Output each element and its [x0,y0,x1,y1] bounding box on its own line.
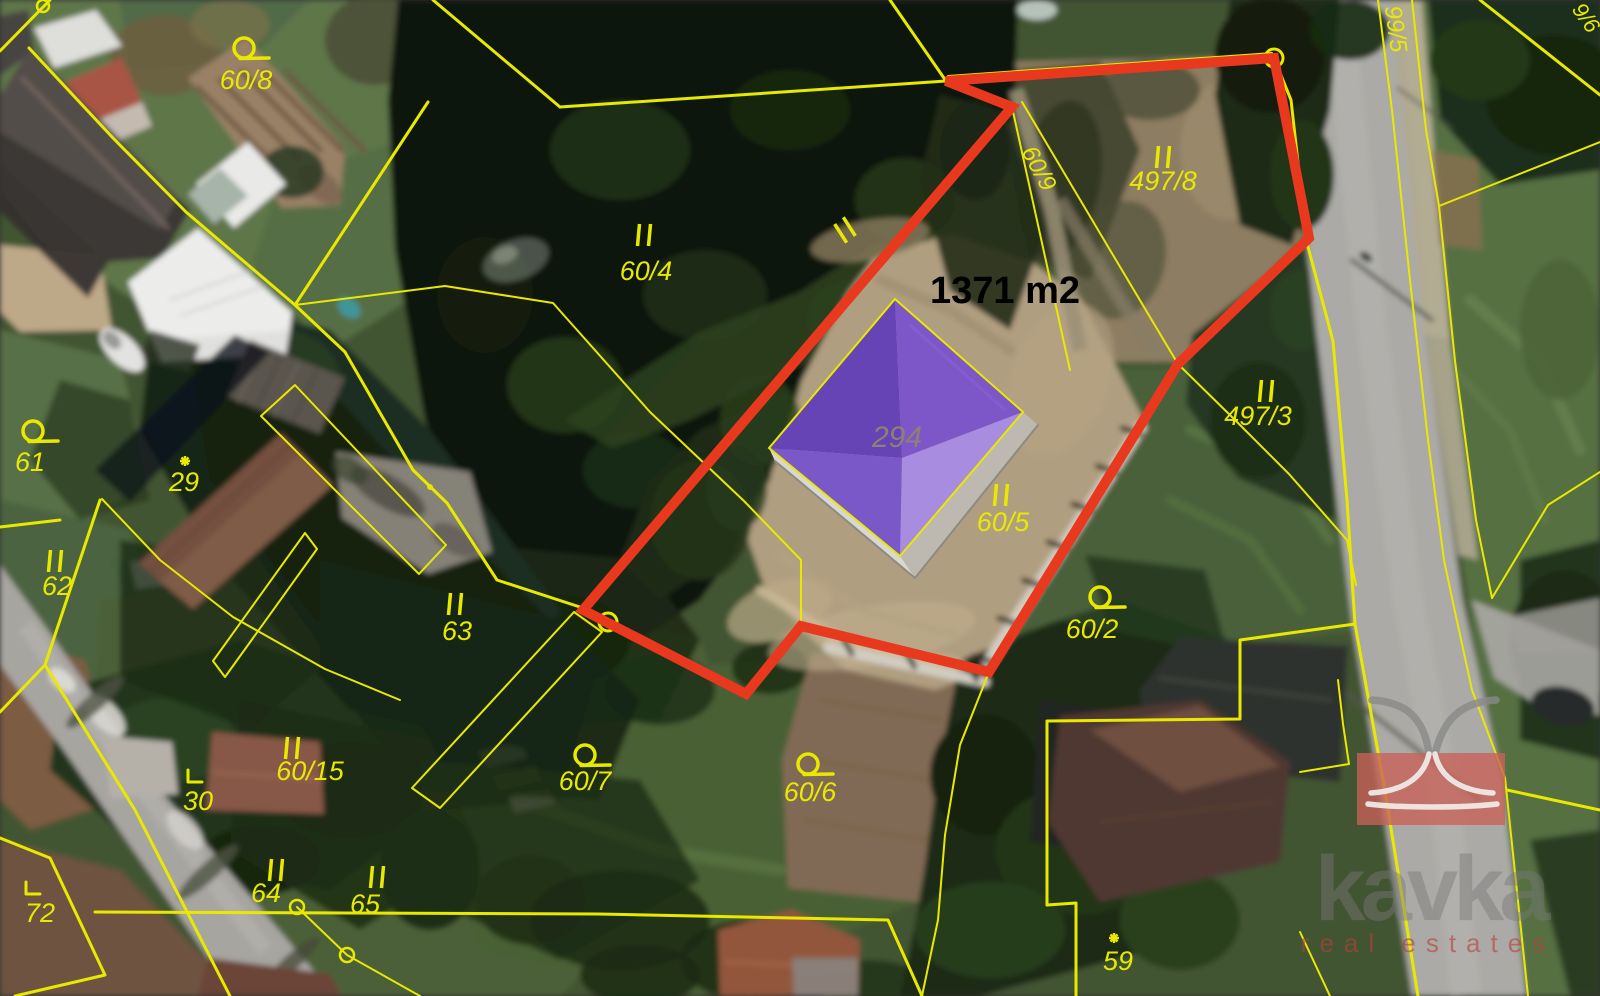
svg-text:30: 30 [183,786,213,816]
svg-text:29: 29 [168,467,199,497]
svg-text:60/2: 60/2 [1066,614,1119,644]
svg-text:294: 294 [871,421,922,454]
svg-text:497/8: 497/8 [1129,166,1197,196]
svg-text:1371 m2: 1371 m2 [930,270,1080,312]
svg-text:64: 64 [251,878,281,908]
svg-text:59: 59 [1103,946,1133,976]
svg-text:72: 72 [25,898,55,928]
svg-text:65: 65 [350,889,381,919]
svg-text:60/6: 60/6 [784,777,838,807]
svg-text:61: 61 [15,447,45,477]
svg-text:497/3: 497/3 [1224,401,1292,431]
svg-text:60/4: 60/4 [620,256,673,286]
svg-text:60/7: 60/7 [559,766,613,796]
svg-text:real estates: real estates [1301,928,1555,958]
svg-text:63: 63 [442,616,472,646]
svg-text:60/8: 60/8 [220,65,273,95]
svg-text:60/15: 60/15 [276,756,345,786]
svg-text:kavka: kavka [1315,838,1552,940]
svg-text:62: 62 [42,571,72,601]
svg-text:60/5: 60/5 [977,507,1031,537]
